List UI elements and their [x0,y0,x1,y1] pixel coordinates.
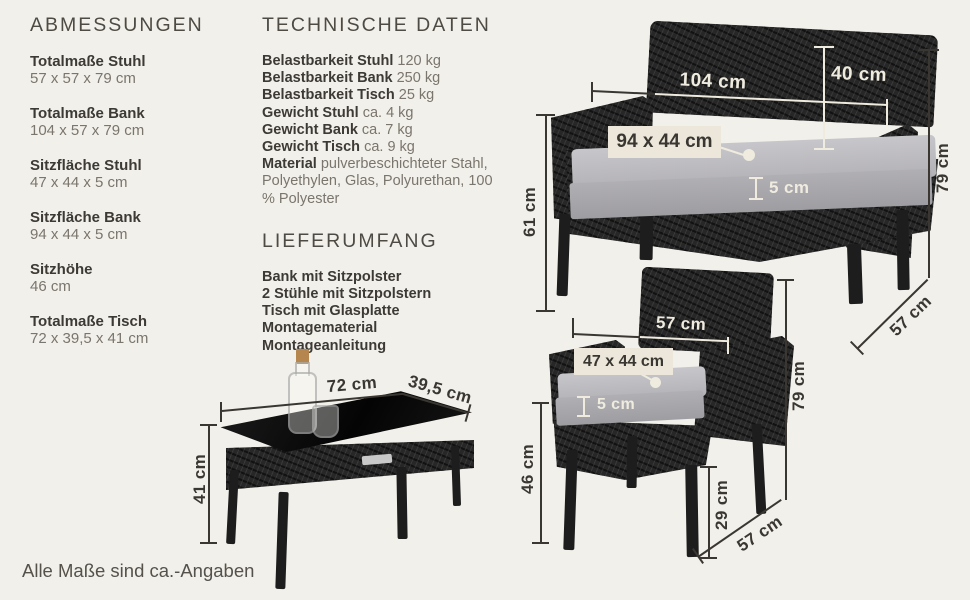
tech-item: Belastbarkeit Stuhl 120 kg [262,53,494,70]
dim-cap [814,46,834,48]
delivery-item: Bank mit Sitzpolster [262,269,494,286]
abmessungen-section: ABMESSUNGEN Totalmaße Stuhl 57 x 57 x 79… [30,14,245,365]
dim-cap [749,177,763,179]
dim-cap [777,279,794,281]
chair-width-label: 57 cm [655,313,708,335]
dim-cap [727,337,729,354]
dim-cap [532,542,549,544]
spec-item: Sitzfläche Bank 94 x 44 x 5 cm [30,209,245,244]
spec-item: Totalmaße Bank 104 x 57 x 79 cm [30,105,245,140]
spec-item: Totalmaße Stuhl 57 x 57 x 79 cm [30,53,245,88]
footer-note: Alle Maße sind ca.-Angaben [22,560,254,582]
bench-armrest-height-line [545,115,547,311]
dim-cap [749,198,763,200]
tech-item: Belastbarkeit Tisch 25 kg [262,87,494,104]
chair-cushion-size-tag: 47 x 44 cm [574,348,673,375]
bench-armrest-height-label: 61 cm [520,187,540,237]
spec-label: Sitzhöhe [30,261,245,278]
spec-label: Totalmaße Bank [30,105,245,122]
chair-total-height-line [785,280,787,500]
chair-width-line [573,333,641,338]
bench-back-height-label: 40 cm [831,63,888,87]
dim-cap [814,148,834,150]
dim-cap [919,49,939,51]
tech-item: Belastbarkeit Bank 250 kg [262,70,494,87]
dim-cap [200,542,217,544]
abmessungen-title: ABMESSUNGEN [30,14,245,37]
chair-cushion-thickness-line [583,397,585,416]
delivery-item: Montagematerial [262,320,494,337]
bench-leg [557,214,571,296]
spec-label: Totalmaße Tisch [30,313,245,330]
bench-back-height-line [823,47,825,149]
chair-seat-height-label: 46 cm [518,444,538,494]
bench-cushion-pointer-dot [743,149,755,161]
dim-cap [700,557,717,559]
bench-cushion-thickness-line [755,178,757,199]
spec-value: 57 x 57 x 79 cm [30,70,245,88]
bench-cushion-thickness-label: 5 cm [769,178,809,198]
tech-item: Gewicht Bank ca. 7 kg [262,122,494,139]
dim-cap [536,310,555,312]
chair-total-height-label: 79 cm [789,361,809,411]
dim-cap [536,114,555,116]
dim-cap [886,99,888,125]
delivery-item: 2 Stühle mit Sitzpolstern [262,286,494,303]
tech-item: Gewicht Tisch ca. 9 kg [262,139,494,156]
chair-leg-height-line [708,467,710,558]
table-width-label: 72 cm [322,373,382,398]
product-dimensions-infographic: ABMESSUNGEN Totalmaße Stuhl 57 x 57 x 79… [0,0,970,600]
chair-leg [685,465,699,557]
table-height-label: 41 cm [190,454,210,504]
bench-total-height-label: 79 cm [933,142,953,194]
spec-value: 47 x 44 x 5 cm [30,174,245,192]
spec-item: Sitzhöhe 46 cm [30,261,245,296]
bench-leg [896,210,909,290]
chair-depth-label: 57 cm [730,509,789,558]
technische-daten-title: TECHNISCHE DATEN [262,14,494,37]
technische-daten-section: TECHNISCHE DATEN Belastbarkeit Stuhl 120… [262,14,494,355]
chair-cushion-pointer-dot [650,377,661,388]
chair-leg [627,436,638,488]
tech-item: Gewicht Stuhl ca. 4 kg [262,105,494,122]
spec-item: Sitzfläche Stuhl 47 x 44 x 5 cm [30,157,245,192]
table-leg [396,467,407,539]
dim-cap [700,466,717,468]
table-apron [226,440,474,490]
chair-seat-height-line [540,403,542,543]
chair-cushion-thickness-label: 5 cm [597,396,635,414]
spec-label: Totalmaße Stuhl [30,53,245,70]
dim-cap [577,396,590,398]
spec-value: 104 x 57 x 79 cm [30,122,245,140]
bench-leg [847,244,863,304]
table-leg [275,492,288,589]
bench-cushion-size-tag: 94 x 44 cm [608,126,721,158]
spec-value: 94 x 44 x 5 cm [30,226,245,244]
dim-cap [577,415,590,417]
spec-label: Sitzfläche Bank [30,209,245,226]
bench-width-label: 104 cm [668,69,759,95]
spec-label: Sitzfläche Stuhl [30,157,245,174]
spec-item: Totalmaße Tisch 72 x 39,5 x 41 cm [30,313,245,348]
chair-leg-height-label: 29 cm [712,480,732,530]
bench-total-height-line [928,50,930,278]
drinking-glass [312,405,339,438]
spec-value: 46 cm [30,278,245,296]
dim-cap [532,402,549,404]
delivery-item: Tisch mit Glasplatte [262,303,494,320]
chair-leg [563,450,577,550]
tech-item-material: Material pulverbeschichteter Stahl, Poly… [262,156,494,208]
dim-cap [200,424,217,426]
bench-leg [640,210,654,260]
spec-value: 72 x 39,5 x 41 cm [30,330,245,348]
bench-depth-label: 57 cm [884,289,938,342]
lieferumfang-title: LIEFERUMFANG [262,230,494,253]
